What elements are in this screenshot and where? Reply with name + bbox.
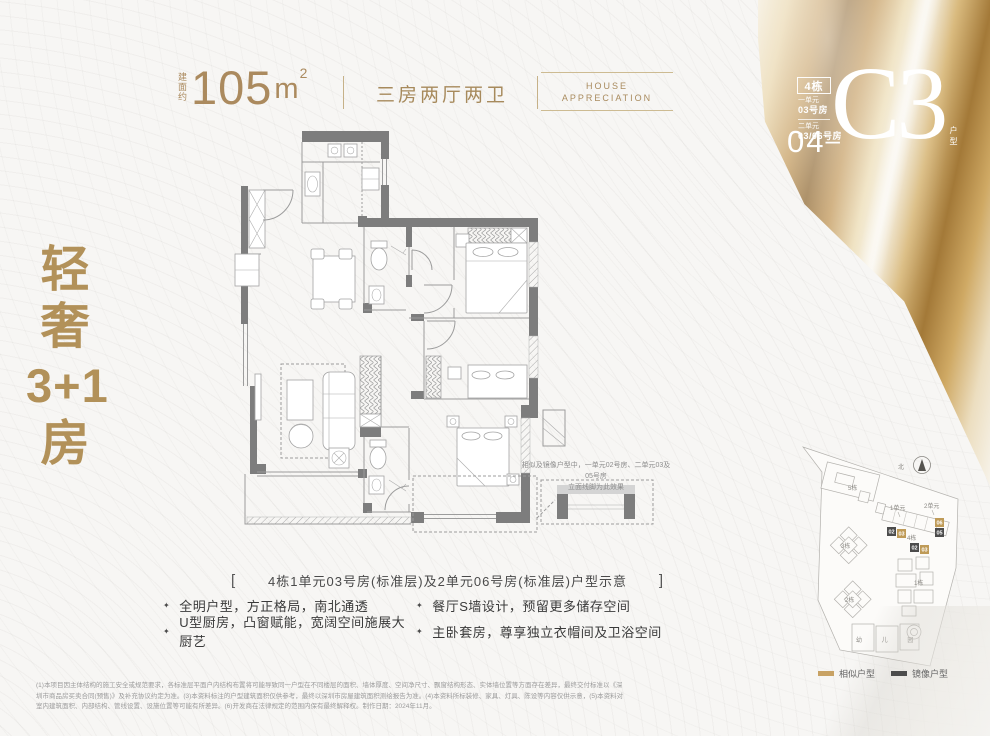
- building-2-label: 2栋: [845, 596, 854, 604]
- tag-05: 05: [936, 531, 942, 537]
- brand-line1: HOUSE: [541, 80, 673, 92]
- caption-text: 4栋1单元03号房(标准层)及2单元06号房(标准层)户型示意: [268, 571, 627, 590]
- tag-02-unit1: 02: [888, 530, 894, 536]
- north-label: 北: [898, 463, 904, 471]
- poster-page: 4栋 一单元 03号房 二单元 03/06号房 04– C3 户型 建面约 10…: [0, 0, 990, 736]
- similar-swatch: [818, 671, 834, 676]
- legend-similar-label: 相似户型: [839, 667, 875, 680]
- tag-03-unit2: 03: [921, 548, 927, 554]
- disclaimer-line2: 圳市商品房买卖合同(预售)》及补充协议约定为准。(3)本资料标注的户型建筑面积仅…: [36, 692, 734, 703]
- area-value: 105: [191, 66, 272, 110]
- legend-mirror-label: 镜像户型: [912, 667, 948, 680]
- building-3-label: 3栋: [841, 542, 850, 550]
- slogan-line3: 3+1: [26, 356, 104, 416]
- floor-plan-drawing: [225, 128, 670, 598]
- plan-caption: [ 4栋1单元03号房(标准层)及2单元06号房(标准层)户型示意 ]: [225, 571, 670, 590]
- unit-m: m: [274, 73, 298, 105]
- caption-bracket-left: [: [231, 572, 236, 589]
- unit-exponent: 2: [300, 65, 308, 81]
- area-block: 建面约 105 m2: [176, 66, 306, 110]
- plan-furniture: [235, 144, 565, 510]
- unit2-map-label: 2单元: [924, 502, 939, 510]
- legend-mirror: 镜像户型: [891, 667, 948, 680]
- plan-note: 相似及镜像户型中，一单元02号房、二单元03及05号房 立面线脚为此效果: [518, 460, 674, 493]
- bullet-icon: ✦: [416, 627, 423, 636]
- tag-02-unit2: 02: [911, 546, 917, 552]
- feature-item: ✦ 餐厅S墙设计，预留更多储存空间: [416, 596, 763, 615]
- feature-item: ✦ 主卧套房，尊享独立衣帽间及卫浴空间: [416, 622, 763, 641]
- feature-text: 餐厅S墙设计，预留更多储存空间: [432, 596, 630, 615]
- layout-type: 三房两厅两卫: [352, 80, 532, 107]
- tag-06: 06: [936, 521, 942, 527]
- map-legend: 相似户型 镜像户型: [818, 667, 948, 680]
- brand-line2: APPRECIATION: [541, 92, 673, 104]
- disclaimer-line1: (1)本项目因主体结构的施工安全或规范要求，各标准层平面户内结构布置将可能导致同…: [36, 681, 734, 692]
- feature-text: U型厨房，凸窗赋能，宽阔空间施展大厨艺: [179, 612, 416, 650]
- disclaimer: (1)本项目因主体结构的施工安全或规范要求，各标准层平面户内结构布置将可能导致同…: [36, 681, 734, 713]
- brand-block: HOUSE APPRECIATION: [541, 72, 673, 111]
- slogan: 轻 奢 3+1 房: [26, 242, 104, 473]
- building-1-label: 1栋: [914, 579, 923, 587]
- bullet-icon: ✦: [163, 627, 170, 636]
- unit1-map-label: 1单元: [890, 504, 905, 512]
- bullet-icon: ✦: [416, 601, 423, 610]
- feature-list: ✦ 全明户型，方正格局，南北通透 ✦ 餐厅S墙设计，预留更多储存空间 ✦ U型厨…: [163, 592, 763, 644]
- building-5-label: 5栋: [848, 484, 857, 492]
- plan-note-line1: 相似及镜像户型中，一单元02号房、二单元03及05号房: [518, 460, 674, 482]
- bullet-icon: ✦: [163, 601, 170, 610]
- area-unit: m2: [274, 72, 306, 110]
- plan-note-line2: 立面线脚为此效果: [518, 482, 674, 493]
- feature-text: 主卧套房，尊享独立衣帽间及卫浴空间: [432, 622, 662, 641]
- gold-drape-decoration: [758, 0, 990, 486]
- slogan-line1: 轻: [26, 242, 104, 299]
- north-arrow-icon: [914, 457, 931, 474]
- building-4-label: 4栋: [907, 534, 916, 542]
- slogan-line4: 房: [26, 416, 104, 473]
- slogan-line2: 奢: [26, 299, 104, 356]
- tag-03-unit1: 03: [898, 532, 904, 538]
- legend-similar: 相似户型: [818, 667, 875, 680]
- disclaimer-line3: 室内建筑面积、内部结构、管线设置、设施位置等可能有所差异。(6)开发商在法律规定…: [36, 702, 734, 713]
- mirror-swatch: [891, 671, 907, 676]
- area-prefix: 建面约: [176, 72, 187, 102]
- header-divider-1: [343, 76, 344, 109]
- caption-bracket-right: ]: [659, 572, 664, 589]
- feature-item: ✦ U型厨房，凸窗赋能，宽阔空间施展大厨艺: [163, 612, 416, 650]
- header-divider-2: [537, 76, 538, 109]
